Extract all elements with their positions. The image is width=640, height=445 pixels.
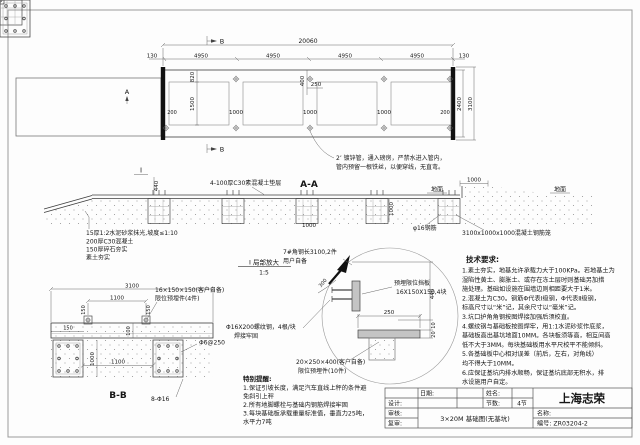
embed-note-2: 限位预埋件(10件) (298, 367, 346, 375)
bb-plate-note-1: 16×150×150(客户自备) (155, 286, 224, 294)
dim-150-right-plate: 150 (146, 305, 152, 315)
approach-ramp (16, 78, 161, 136)
dim-10-detail: 10 (431, 322, 437, 328)
tech-line-10: 5.各基础板中心相对误差（前后，左右，对角线） (462, 350, 598, 358)
title-block-labels: 日期: 姓名: 设计: 节数: 4节 审核: 复审: 3×20M 基础图(无基坑… (388, 390, 605, 428)
dim-4950-1: 4950 (194, 54, 208, 60)
angle-note-1: 7#角钢长3100,2件 (283, 248, 337, 256)
dim-2400: 2400 (457, 97, 463, 111)
dim-1000-depth: 1000 (389, 202, 395, 216)
review-label: 复审: (388, 420, 402, 428)
date-label: 日期: (420, 390, 434, 398)
detail-scale: 1:5 (259, 270, 269, 277)
dim-4950-2: 4950 (266, 54, 280, 60)
weighbridge-modules (169, 82, 451, 125)
dim-4950-4: 4950 (410, 54, 424, 60)
tech-line-4: 2.混凝土为C30。钢筋Φ代表Ⅰ级钢，Φ代表Ⅱ级钢， (462, 294, 600, 302)
stop-plate-note-2: 16X150X150,4块 (396, 288, 447, 296)
angle-steel-symbol (337, 255, 350, 273)
tech-line-1: 1.素土夯实，地基允许承载力大于100KPa。若地基土为 (462, 267, 615, 275)
cushion-label: 4-100厚C30素混凝土垫层 (210, 179, 281, 187)
plan-labels: B B A 20060 130 4950 4950 4950 4950 130 … (125, 38, 474, 172)
dim-250: 250 (311, 82, 322, 88)
tech-line-9: 低不大于3MM。每块基础板用水平尺校平不能倾斜。 (462, 341, 607, 349)
bb-plate-note-2: 限位预埋件(4件) (155, 295, 200, 303)
tech-line-6: 3.坑口护角角钢按图焊接加强后须校直。 (462, 313, 573, 321)
check-label: 审核: (388, 410, 402, 418)
drawing-sheet: B B A 20060 130 4950 4950 4950 4950 130 … (0, 0, 640, 445)
drawing-number: 编号: ZR03204-2 (537, 420, 588, 428)
dim-1000-gap1: 1000 (229, 110, 243, 116)
tech-req-title: 技术要求: (466, 254, 499, 264)
special-line-3: 2.所有地脚螺栓与基础内钢筋焊接牢固 (243, 401, 348, 409)
dim-1000-step: 1000 (467, 178, 481, 184)
dim-20060: 20060 (298, 38, 317, 45)
rebar-label-aa: φ16钢筋 (413, 224, 437, 232)
technical-requirements: 技术要求: 1.素土夯实，地基允许承载力大于100KPa。若地基土为 湿陷性黄土… (462, 254, 615, 386)
pier-stub (369, 338, 395, 360)
tech-line-2: 湿陷性黄土、膨胀土、或存在冻土层时则基础另加措 (462, 276, 604, 284)
plan-view (0, 0, 476, 158)
dim-3100-bb: 3100 (125, 284, 139, 290)
special-notes: 特别提醒: 1.保证引坡长度，满足汽车直线上秤的条件避 免斜引上秤 2.所有地脚… (243, 374, 368, 426)
tech-line-11: 均不得大于10MM。 (462, 360, 518, 368)
tech-line-5: 标高尺寸以“米”记，其余尺寸以“毫米”记。 (462, 304, 580, 312)
sections-label: 节数: (486, 400, 500, 408)
section-a-marker: A (125, 88, 130, 96)
name-label: 姓名: (486, 390, 500, 398)
layer-note-3: 150厚碎石夯实 (86, 246, 127, 254)
section-b-arrow-bottom (211, 147, 217, 150)
dim-440-aa: 440 (154, 180, 160, 191)
pipe-note-line2: 管内预留一根铁丝，以便穿线，无直弯。 (336, 163, 444, 171)
dim-4950-3: 4950 (338, 54, 352, 60)
design-label: 设计: (388, 400, 402, 408)
end-rail-left (161, 67, 165, 140)
name-title-label: 名称: (537, 410, 551, 418)
stop-plate-note-1: 预埋限位挡板 (394, 279, 430, 287)
dim-1500: 1500 (190, 97, 196, 111)
dim-3100-plan: 3100 (468, 97, 474, 111)
detail-flag: I (140, 167, 142, 175)
embedded-base-plate (358, 330, 420, 338)
section-aa (0, 0, 592, 230)
special-line-4: 3.每块基础板承载重量标准值，垂直力25吨， (243, 410, 368, 418)
ground-label-right: 地面 (554, 186, 566, 194)
section-b-marker-bottom: B (220, 146, 224, 154)
angle-note-2: 用户自备 (283, 257, 307, 265)
ground-label-left: 地面 (431, 186, 443, 194)
dim-1100-top: 1100 (110, 296, 124, 302)
tech-line-12: 6.应保证基坑内排水顺畅，保证基坑底部无积水，排 (462, 369, 604, 377)
company-name: 上海志荣 (559, 392, 605, 406)
pipe-leader (310, 131, 334, 158)
detail-title: I 局部放大 (249, 258, 279, 267)
section-b-arrow-top (211, 39, 217, 42)
rod-note-2: 焊接牢固 (234, 332, 258, 340)
dim-200-right: 200 (440, 110, 450, 116)
embed-note-1: 20×250×400(客户自备) (296, 358, 365, 366)
main-rebar-label: 8-Φ16 (151, 396, 170, 403)
tech-line-3: 施处理。基础如设施在围墙边则相距要大于1米。 (462, 285, 596, 293)
special-line-1: 1.保证引坡长度，满足汽车直线上秤的条件避 (243, 384, 366, 392)
dim-820: 820 (190, 71, 196, 82)
tech-line-8: 基础板高出基坑地面10MM。各块板须等高，相互间高 (462, 332, 611, 340)
limit-stop-plate (352, 281, 360, 311)
layer-note-2: 200厚C30混凝土 (86, 238, 133, 246)
section-bb-title: B-B (109, 391, 127, 401)
dim-20-detail: 20 (431, 331, 437, 337)
dim-1000-under: 1000 (302, 223, 316, 229)
special-notes-title: 特别提醒: (243, 374, 272, 383)
stirrup-label: Φ6@250 (199, 340, 225, 347)
dim-400: 400 (300, 75, 306, 86)
drawing-title: 3×20M 基础图(无基坑) (440, 414, 510, 423)
special-line-2: 免斜引上秤 (243, 393, 274, 401)
detail-i-labels: I 局部放大 1:5 7#角钢长3100,2件 用户自备 300 预埋限位挡板 … (226, 248, 447, 375)
dim-250-detail: 250 (384, 310, 395, 316)
special-line-5: 水平力7吨 (243, 418, 272, 426)
section-aa-title: A-A (300, 180, 318, 190)
layer-note-1: 15厚1:2水泥砂浆抹光,坡度≤1:10 (86, 229, 178, 237)
end-rail-right (451, 67, 455, 140)
dim-150-left-plate: 150 (81, 305, 87, 315)
dim-1000-pier-depth: 1000 (90, 352, 96, 366)
tech-line-13: 水设施用户自定。 (462, 378, 512, 386)
dim-100-slab: 100 (126, 326, 132, 336)
dim-1100-bottom: 1100 (111, 360, 125, 366)
dim-200-left: 200 (167, 110, 177, 116)
dim-1000-gap2: 1000 (303, 110, 317, 116)
layer-note-4: 素土夯实 (86, 254, 110, 262)
rod-note-1: Φ16X200螺纹钢，4根/块 (226, 323, 296, 331)
dim-440-detail: 440 (430, 288, 436, 299)
pipe-note-line1: 2’ 镀锌管，通入磅房，严禁水进入管内， (336, 154, 446, 162)
dim-130-right: 130 (459, 54, 470, 60)
section-b-marker-top: B (220, 38, 224, 46)
tech-line-7: 4.螺纹钢与基础板按图焊牢，用1:1水泥砂浆作底浆， (462, 322, 608, 330)
dim-1000-gap3: 1000 (377, 110, 391, 116)
dim-150-edge: 150 (63, 326, 73, 332)
cage-label: 3100x1000x1000混凝土钢筋笼 (462, 229, 551, 237)
section-a-arrow (125, 96, 128, 101)
foundation-drawing: B B A 20060 130 4950 4950 4950 4950 130 … (0, 0, 640, 445)
dim-130-left: 130 (147, 54, 158, 60)
sections-value: 4节 (517, 400, 527, 408)
